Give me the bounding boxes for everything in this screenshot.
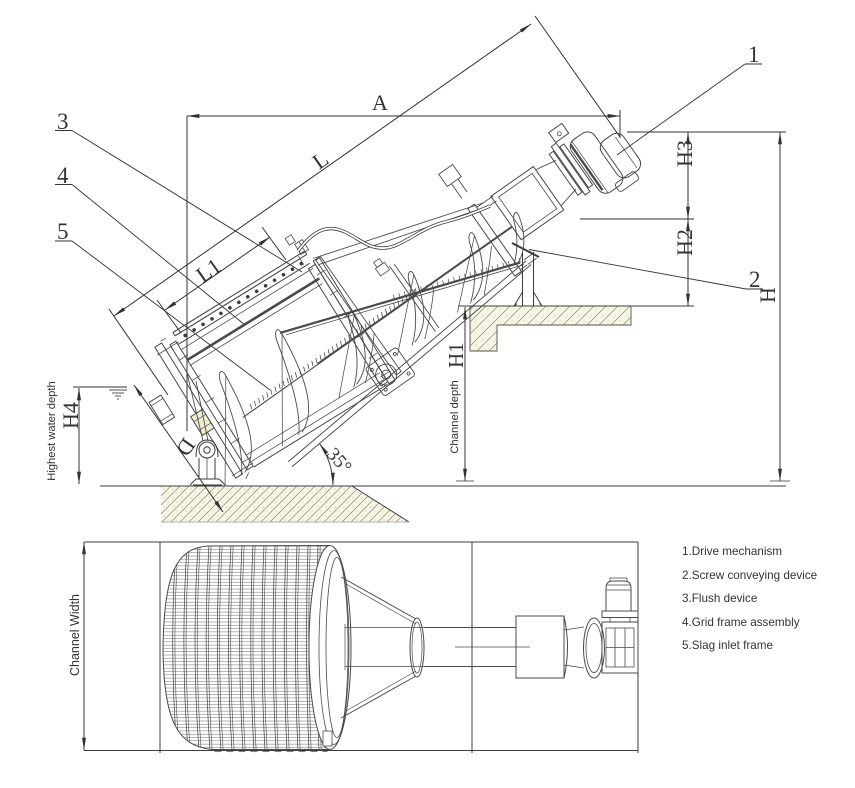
svg-text:5: 5 (57, 219, 69, 244)
svg-text:A: A (372, 90, 388, 115)
svg-text:2: 2 (749, 267, 761, 292)
svg-text:H1: H1 (444, 342, 468, 368)
svg-text:Highest water depth: Highest water depth (46, 381, 58, 481)
svg-text:5.Slag inlet frame: 5.Slag inlet frame (682, 639, 773, 652)
svg-text:H4: H4 (58, 402, 83, 429)
svg-text:2.Screw conveying device: 2.Screw conveying device (682, 569, 817, 582)
svg-text:H3: H3 (672, 140, 697, 167)
svg-text:4.Grid frame assembly: 4.Grid frame assembly (682, 616, 800, 629)
svg-text:H2: H2 (672, 229, 697, 256)
svg-text:Channel Width: Channel Width (68, 594, 82, 676)
svg-text:Channel depth: Channel depth (449, 380, 461, 454)
svg-text:3.Flush device: 3.Flush device (682, 592, 757, 605)
svg-text:1: 1 (748, 42, 760, 67)
svg-text:1.Drive mechanism: 1.Drive mechanism (682, 545, 782, 558)
